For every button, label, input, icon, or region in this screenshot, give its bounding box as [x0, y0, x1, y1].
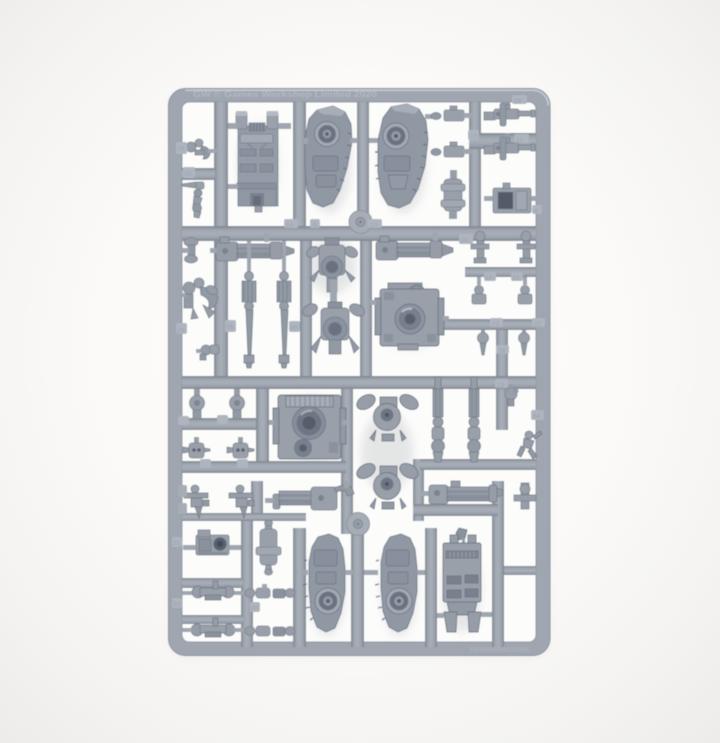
svg-text:35: 35 — [251, 605, 259, 612]
svg-text:20: 20 — [184, 171, 192, 178]
svg-text:8: 8 — [313, 222, 317, 229]
svg-text:05: 05 — [226, 324, 234, 331]
svg-text:10: 10 — [512, 275, 520, 282]
svg-text:22: 22 — [492, 321, 500, 328]
svg-text:29: 29 — [498, 348, 506, 355]
svg-text:9939999902806: 9939999902806 — [469, 647, 529, 654]
svg-text:22: 22 — [534, 321, 542, 328]
svg-text:18: 18 — [514, 98, 522, 105]
svg-text:13: 13 — [370, 222, 378, 229]
svg-text:31: 31 — [173, 540, 181, 547]
svg-text:15: 15 — [470, 133, 478, 140]
svg-text:20: 20 — [461, 237, 469, 244]
svg-text:33: 33 — [173, 601, 181, 608]
svg-text:21: 21 — [516, 137, 524, 144]
svg-text:29: 29 — [177, 146, 185, 153]
svg-text:09: 09 — [290, 325, 298, 332]
svg-text:64: 64 — [533, 413, 541, 420]
svg-text:23: 23 — [497, 382, 505, 389]
svg-text:6: 6 — [534, 208, 538, 215]
svg-text:GW © Games Workshop Limited 20: GW © Games Workshop Limited 2020 — [193, 90, 378, 99]
svg-text:26: 26 — [177, 327, 185, 334]
svg-text:14: 14 — [485, 275, 493, 282]
svg-text:14: 14 — [286, 222, 294, 229]
